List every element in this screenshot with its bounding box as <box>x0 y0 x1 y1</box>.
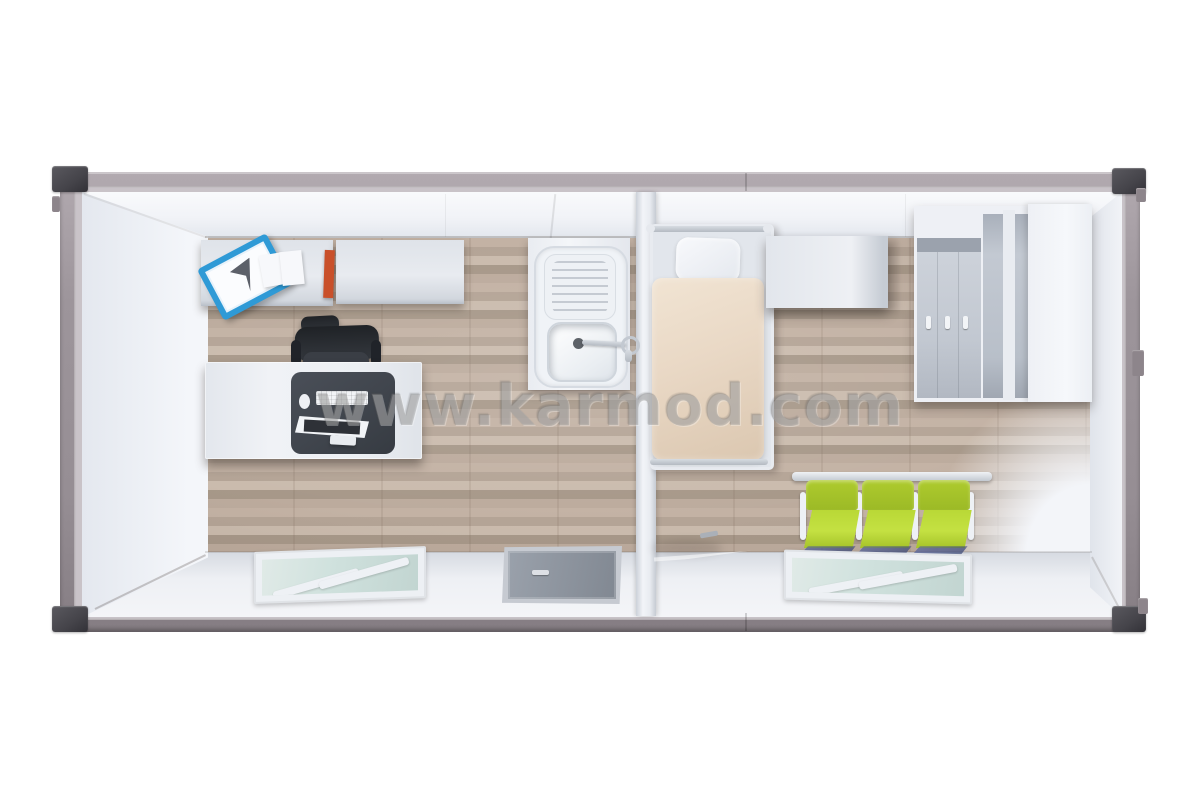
locker-top-edge <box>917 238 981 252</box>
bench-seat-cushion <box>804 510 862 548</box>
faucet-stem <box>625 350 632 362</box>
paper-sheet <box>279 250 304 286</box>
bench-seat-cushion <box>916 510 974 548</box>
door-handle <box>700 530 719 538</box>
bed-headboard-rail <box>648 226 770 232</box>
shelf-slot <box>1015 214 1028 398</box>
shelf-divider <box>1003 210 1015 400</box>
bedside-cabinet <box>766 236 888 308</box>
window-glass <box>262 554 418 595</box>
locker-handle <box>926 316 931 329</box>
bed-post <box>646 224 655 233</box>
bed-footboard-rail <box>650 459 768 465</box>
shelf-slot <box>983 214 1003 398</box>
bench-seat-cushion <box>860 510 918 548</box>
bench-seat-back <box>806 480 858 510</box>
bench-seat-back <box>918 480 970 510</box>
frame-tab-left <box>52 196 60 212</box>
entrance-door <box>502 546 622 604</box>
wall-panel-seam <box>905 194 906 237</box>
restroom-window <box>784 550 972 605</box>
frame-hinge-right <box>1132 350 1144 376</box>
wall-panel-seam <box>445 194 446 237</box>
corner-casting-bottom-left <box>52 606 88 632</box>
left-end-wall <box>82 192 208 617</box>
frame-tab-right-top <box>1136 188 1146 202</box>
frame-joint-seam-top <box>745 173 747 191</box>
mouse <box>299 394 310 409</box>
watermark: www.karmod.com <box>316 378 886 434</box>
folder-logo-icon <box>228 258 263 296</box>
office-window <box>254 546 426 604</box>
frame-tab-right-bottom <box>1138 598 1148 614</box>
bed-post <box>763 224 772 233</box>
frame-joint-seam-bottom <box>745 613 747 631</box>
window-glass <box>792 558 964 597</box>
locker-handle <box>945 316 950 329</box>
orange-binder <box>323 250 335 298</box>
office-wall-cabinet-right <box>336 240 464 304</box>
pillow <box>675 237 740 283</box>
door-handle <box>532 570 549 575</box>
right-end-wall <box>1090 192 1122 617</box>
shelf-top-board <box>1028 204 1092 402</box>
window-sash-bar <box>318 557 409 590</box>
sink-drainboard <box>544 254 616 320</box>
locker-handle <box>963 316 968 329</box>
bench-seat-back <box>862 480 914 510</box>
entrance-door-panel <box>508 551 616 599</box>
corner-casting-top-left <box>52 166 88 192</box>
scene-stage: www.karmod.com <box>0 0 1200 800</box>
